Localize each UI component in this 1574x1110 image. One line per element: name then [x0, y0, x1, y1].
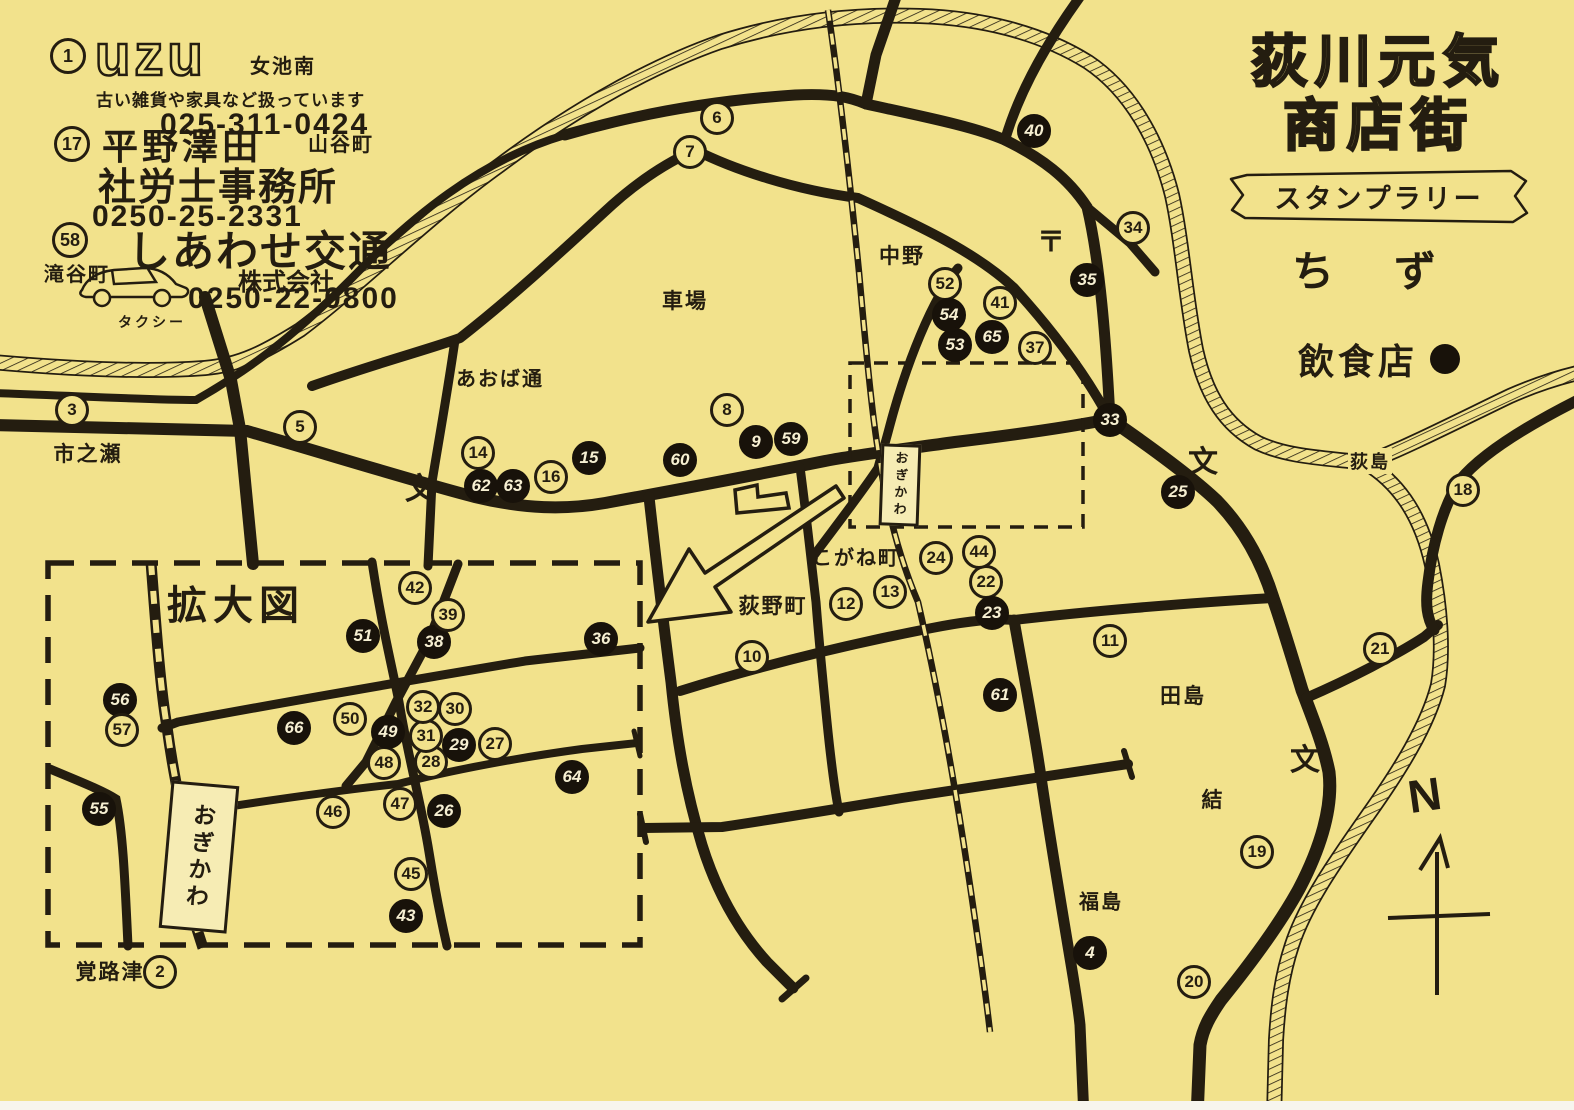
ad-stamp-number-58: 58	[52, 222, 88, 258]
post-office-symbol: 〒	[1037, 220, 1067, 260]
ad3-area: 滝谷町	[44, 258, 110, 287]
stamp-point-26: 26	[427, 794, 461, 828]
place-label-荻島: 荻島	[1348, 448, 1392, 474]
ad3-phone: 0250-22-0800	[188, 282, 399, 316]
legend-label: 飲食店	[1298, 333, 1418, 385]
place-label-覚路津: 覚路津	[76, 956, 145, 986]
stamp-point-9: 9	[739, 425, 773, 459]
legend: 飲食店	[1214, 333, 1544, 385]
place-label-福島: 福島	[1079, 886, 1123, 915]
place-label-荻野町: 荻野町	[739, 590, 808, 620]
stamp-point-50: 50	[333, 702, 367, 736]
stamp-point-44: 44	[962, 535, 996, 569]
place-label-車場: 車場	[662, 285, 708, 315]
stamp-point-12: 12	[829, 587, 863, 621]
stamp-rally-ribbon: スタンプラリー	[1229, 168, 1529, 224]
stamp-point-14: 14	[461, 436, 495, 470]
stamp-point-62: 62	[464, 469, 498, 503]
place-label-中野: 中野	[879, 240, 925, 270]
stamp-point-60: 60	[663, 443, 697, 477]
title-line-2: 商店街	[1214, 94, 1544, 158]
stamp-point-59: 59	[774, 422, 808, 456]
ad3-note: タクシー	[118, 312, 186, 332]
stamp-point-23: 23	[975, 596, 1009, 630]
stamp-point-21: 21	[1363, 632, 1397, 666]
stamp-point-40: 40	[1017, 114, 1051, 148]
stamp-point-10: 10	[735, 640, 769, 674]
stamp-point-51: 51	[346, 619, 380, 653]
ad-stamp-number-17: 17	[54, 126, 90, 162]
chizu-label: ちず	[1214, 238, 1544, 299]
stamp-point-19: 19	[1240, 835, 1274, 869]
stamp-point-13: 13	[873, 575, 907, 609]
hand-drawn-town-map: 2345678910111213141516181920212223242526…	[0, 0, 1574, 1110]
ad1-area: 女池南	[250, 50, 316, 79]
stamp-point-56: 56	[103, 683, 137, 717]
stamp-point-52: 52	[928, 267, 962, 301]
stamp-point-30: 30	[438, 692, 472, 726]
place-label-あおば通: あおば通	[456, 363, 544, 392]
stamp-point-36: 36	[584, 622, 618, 656]
ogikawa-station-sign-inset: おぎかわ	[159, 780, 240, 933]
stamp-point-4: 4	[1073, 936, 1107, 970]
place-label-市之瀬: 市之瀬	[54, 438, 123, 468]
map-title-block: 荻川元気 商店街 スタンプラリー ちず 飲食店	[1214, 30, 1544, 385]
ad-stamp-number-1: 1	[50, 38, 86, 74]
stamp-point-39: 39	[431, 598, 465, 632]
stamp-point-29: 29	[442, 728, 476, 762]
ribbon-label: スタンプラリー	[1229, 168, 1529, 224]
stamp-point-49: 49	[371, 715, 405, 749]
place-label-結: 結	[1202, 784, 1225, 814]
stamp-point-37: 37	[1018, 331, 1052, 365]
stamp-point-63: 63	[496, 469, 530, 503]
stamp-point-42: 42	[398, 571, 432, 605]
stamp-point-45: 45	[394, 857, 428, 891]
stamp-point-27: 27	[478, 727, 512, 761]
stamp-point-5: 5	[283, 410, 317, 444]
stamp-point-11: 11	[1093, 624, 1127, 658]
stamp-point-7: 7	[673, 135, 707, 169]
stamp-point-41: 41	[983, 286, 1017, 320]
stamp-point-57: 57	[105, 713, 139, 747]
stamp-point-65: 65	[975, 320, 1009, 354]
stamp-point-15: 15	[572, 441, 606, 475]
stamp-point-8: 8	[710, 393, 744, 427]
stamp-point-33: 33	[1093, 403, 1127, 437]
stamp-point-48: 48	[367, 746, 401, 780]
stamp-point-25: 25	[1161, 475, 1195, 509]
scan-edge	[0, 1101, 1574, 1110]
stamp-point-20: 20	[1177, 965, 1211, 999]
stamp-point-31: 31	[409, 719, 443, 753]
stamp-point-2: 2	[143, 955, 177, 989]
stamp-point-32: 32	[406, 690, 440, 724]
stamp-point-43: 43	[389, 899, 423, 933]
restaurant-dot-icon	[1430, 344, 1460, 374]
stamp-point-34: 34	[1116, 211, 1150, 245]
school-symbol: 文	[1188, 437, 1224, 481]
ogikawa-station-sign-map: おぎかわ	[879, 443, 922, 526]
school-symbol: 文	[405, 464, 441, 508]
north-arrow	[1388, 838, 1490, 995]
title-line-1: 荻川元気	[1214, 30, 1544, 94]
stamp-point-46: 46	[316, 795, 350, 829]
stamp-point-18: 18	[1446, 473, 1480, 507]
stamp-point-54: 54	[932, 298, 966, 332]
stamp-point-61: 61	[983, 678, 1017, 712]
stamp-point-55: 55	[82, 792, 116, 826]
ad2-area: 山谷町	[308, 128, 374, 157]
stamp-point-22: 22	[969, 565, 1003, 599]
stamp-point-53: 53	[938, 328, 972, 362]
uzu-logo: uzu	[95, 22, 207, 89]
place-label-こがね町: こがね町	[812, 542, 900, 571]
stamp-point-6: 6	[700, 101, 734, 135]
stamp-point-3: 3	[55, 393, 89, 427]
school-symbol: 文	[1290, 735, 1326, 779]
building-outline	[735, 485, 789, 513]
stamp-point-66: 66	[277, 711, 311, 745]
stamp-point-64: 64	[555, 760, 589, 794]
stamp-point-47: 47	[383, 787, 417, 821]
inset-title: 拡大図	[167, 573, 305, 631]
stamp-point-35: 35	[1070, 263, 1104, 297]
stamp-point-16: 16	[534, 460, 568, 494]
place-label-田島: 田島	[1160, 680, 1206, 710]
stamp-point-24: 24	[919, 541, 953, 575]
